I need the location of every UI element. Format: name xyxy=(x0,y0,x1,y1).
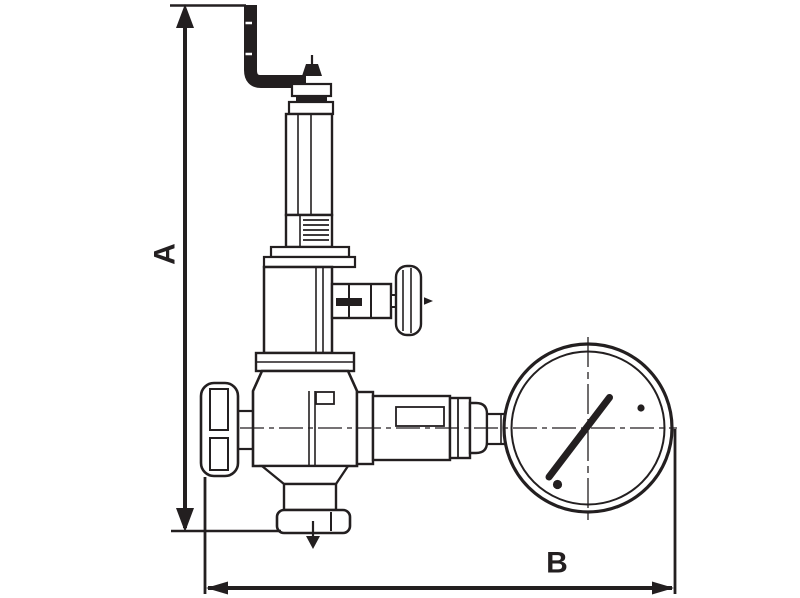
valve-with-gauge-drawing: A B xyxy=(0,0,800,598)
dim-b-arrow-right xyxy=(652,582,674,595)
supply-pipe xyxy=(246,5,307,82)
dim-a-arrow-bottom xyxy=(176,508,194,532)
bonnet-top-step xyxy=(271,247,349,257)
supply-pipe-tube xyxy=(251,5,307,82)
neck-taper xyxy=(262,466,348,484)
port-handle xyxy=(396,266,421,335)
gauge-needle-hub-dot xyxy=(553,480,562,489)
bonnet-upper-flange xyxy=(264,257,355,267)
dim-b-arrow-left xyxy=(206,582,228,595)
handwheel-lower-panel xyxy=(210,438,228,470)
body-casing xyxy=(253,371,357,466)
pipe-boss xyxy=(396,407,444,426)
handwheel xyxy=(201,383,256,476)
dim-a-label: A xyxy=(149,243,182,265)
port-centerline-arrow xyxy=(424,297,433,305)
bonnet-body xyxy=(264,267,332,353)
vent-cap xyxy=(289,55,333,114)
valve-body xyxy=(253,371,357,466)
gauge-port xyxy=(332,266,433,335)
cap-upper-band xyxy=(292,84,331,96)
flow-arrow-head xyxy=(306,536,320,549)
cap-lower-band xyxy=(289,102,333,114)
dim-b-label: B xyxy=(546,547,568,580)
vent-tip xyxy=(302,64,322,76)
neck-tube xyxy=(284,484,336,510)
gauge-dial-dot xyxy=(637,404,644,411)
spring-housing xyxy=(286,114,332,247)
dim-a-arrow-top xyxy=(176,4,194,28)
outlet-neck xyxy=(262,466,348,510)
port-slot xyxy=(336,298,362,306)
handwheel-upper-panel xyxy=(210,389,228,430)
spring-housing-tube xyxy=(286,114,332,215)
technical-drawing-canvas: A B xyxy=(0,0,800,598)
